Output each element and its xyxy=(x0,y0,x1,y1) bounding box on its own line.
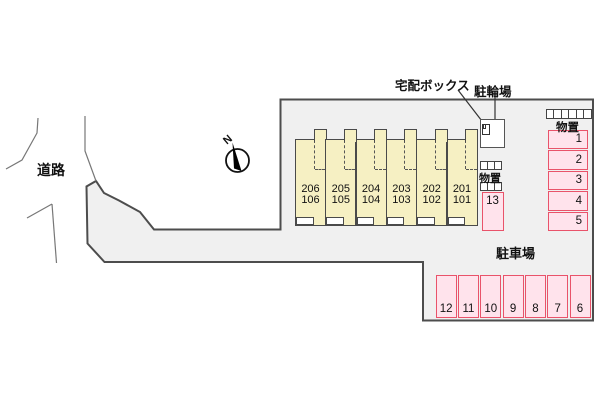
unit-dashed-line xyxy=(345,169,356,170)
unit-dashed-line xyxy=(314,140,315,169)
unit-entry-tab xyxy=(465,129,478,142)
building-unit-205-105: 205 105 xyxy=(325,139,356,226)
road-label: 道路 xyxy=(37,160,65,180)
parking-space-10: 10 xyxy=(480,275,501,318)
road-line-lower-right xyxy=(52,204,57,263)
road-line-upper-left xyxy=(6,118,38,169)
road-line-upper-right xyxy=(85,116,96,181)
parking-space-3: 3 xyxy=(548,171,588,191)
unit-dashed-line xyxy=(466,169,477,170)
parking-space-7: 7 xyxy=(547,275,568,318)
parking-space-9: 9 xyxy=(503,275,524,318)
unit-number-label: 204 104 xyxy=(357,184,386,205)
parking-space-5: 5 xyxy=(548,212,588,232)
storage-units-row-right xyxy=(546,109,592,119)
unit-number-label: 202 102 xyxy=(417,184,446,205)
parking-space-2: 2 xyxy=(548,150,588,170)
unit-porch xyxy=(326,217,344,226)
parking-lot-label: 駐車場 xyxy=(496,243,535,262)
storage-label-right: 物置 xyxy=(556,119,579,135)
unit-dashed-line xyxy=(405,169,416,170)
north-compass-icon xyxy=(226,143,249,173)
storage-label-center: 物置 xyxy=(479,170,501,186)
road-line-lower-left xyxy=(27,204,52,218)
parking-space-8: 8 xyxy=(525,275,546,318)
site-plan: 道路 宅配ボックス 駐輪場 駐車場 N 206 106 205 105 204 … xyxy=(0,0,600,400)
unit-number-label: 203 103 xyxy=(387,184,416,205)
unit-porch xyxy=(448,217,466,226)
parking-space-13: 13 xyxy=(482,192,504,232)
storage-cell xyxy=(583,109,592,119)
parking-space-11: 11 xyxy=(458,275,479,318)
bicycle-parking-area xyxy=(480,119,505,148)
parking-space-12: 12 xyxy=(436,275,457,318)
unit-number-label: 201 101 xyxy=(448,184,477,205)
building-unit-204-104: 204 104 xyxy=(356,139,387,226)
unit-dashed-line xyxy=(435,140,436,169)
building-unit-206-106: 206 106 xyxy=(295,139,326,226)
unit-dashed-line xyxy=(374,140,375,169)
building-unit-201-101: 201 101 xyxy=(447,139,478,226)
unit-dashed-line xyxy=(344,140,345,169)
building-unit-203-103: 203 103 xyxy=(386,139,417,226)
delivery-box-icon xyxy=(482,124,490,135)
unit-porch xyxy=(357,217,375,226)
delivery-box-label: 宅配ボックス xyxy=(395,75,470,94)
bicycle-parking-label: 駐輪場 xyxy=(474,81,512,100)
unit-dashed-line xyxy=(315,169,326,170)
unit-porch xyxy=(417,217,435,226)
parking-space-4: 4 xyxy=(548,191,588,211)
building-unit-202-102: 202 102 xyxy=(416,139,447,226)
unit-dashed-line xyxy=(436,169,447,170)
unit-dashed-line xyxy=(465,140,466,169)
unit-number-label: 206 106 xyxy=(296,184,325,205)
parking-space-6: 6 xyxy=(570,275,591,318)
unit-dashed-line xyxy=(375,169,386,170)
unit-porch xyxy=(387,217,405,226)
delivery-box-door-icon xyxy=(483,124,487,129)
unit-porch xyxy=(296,217,314,226)
unit-dashed-line xyxy=(404,140,405,169)
unit-number-label: 205 105 xyxy=(326,184,355,205)
